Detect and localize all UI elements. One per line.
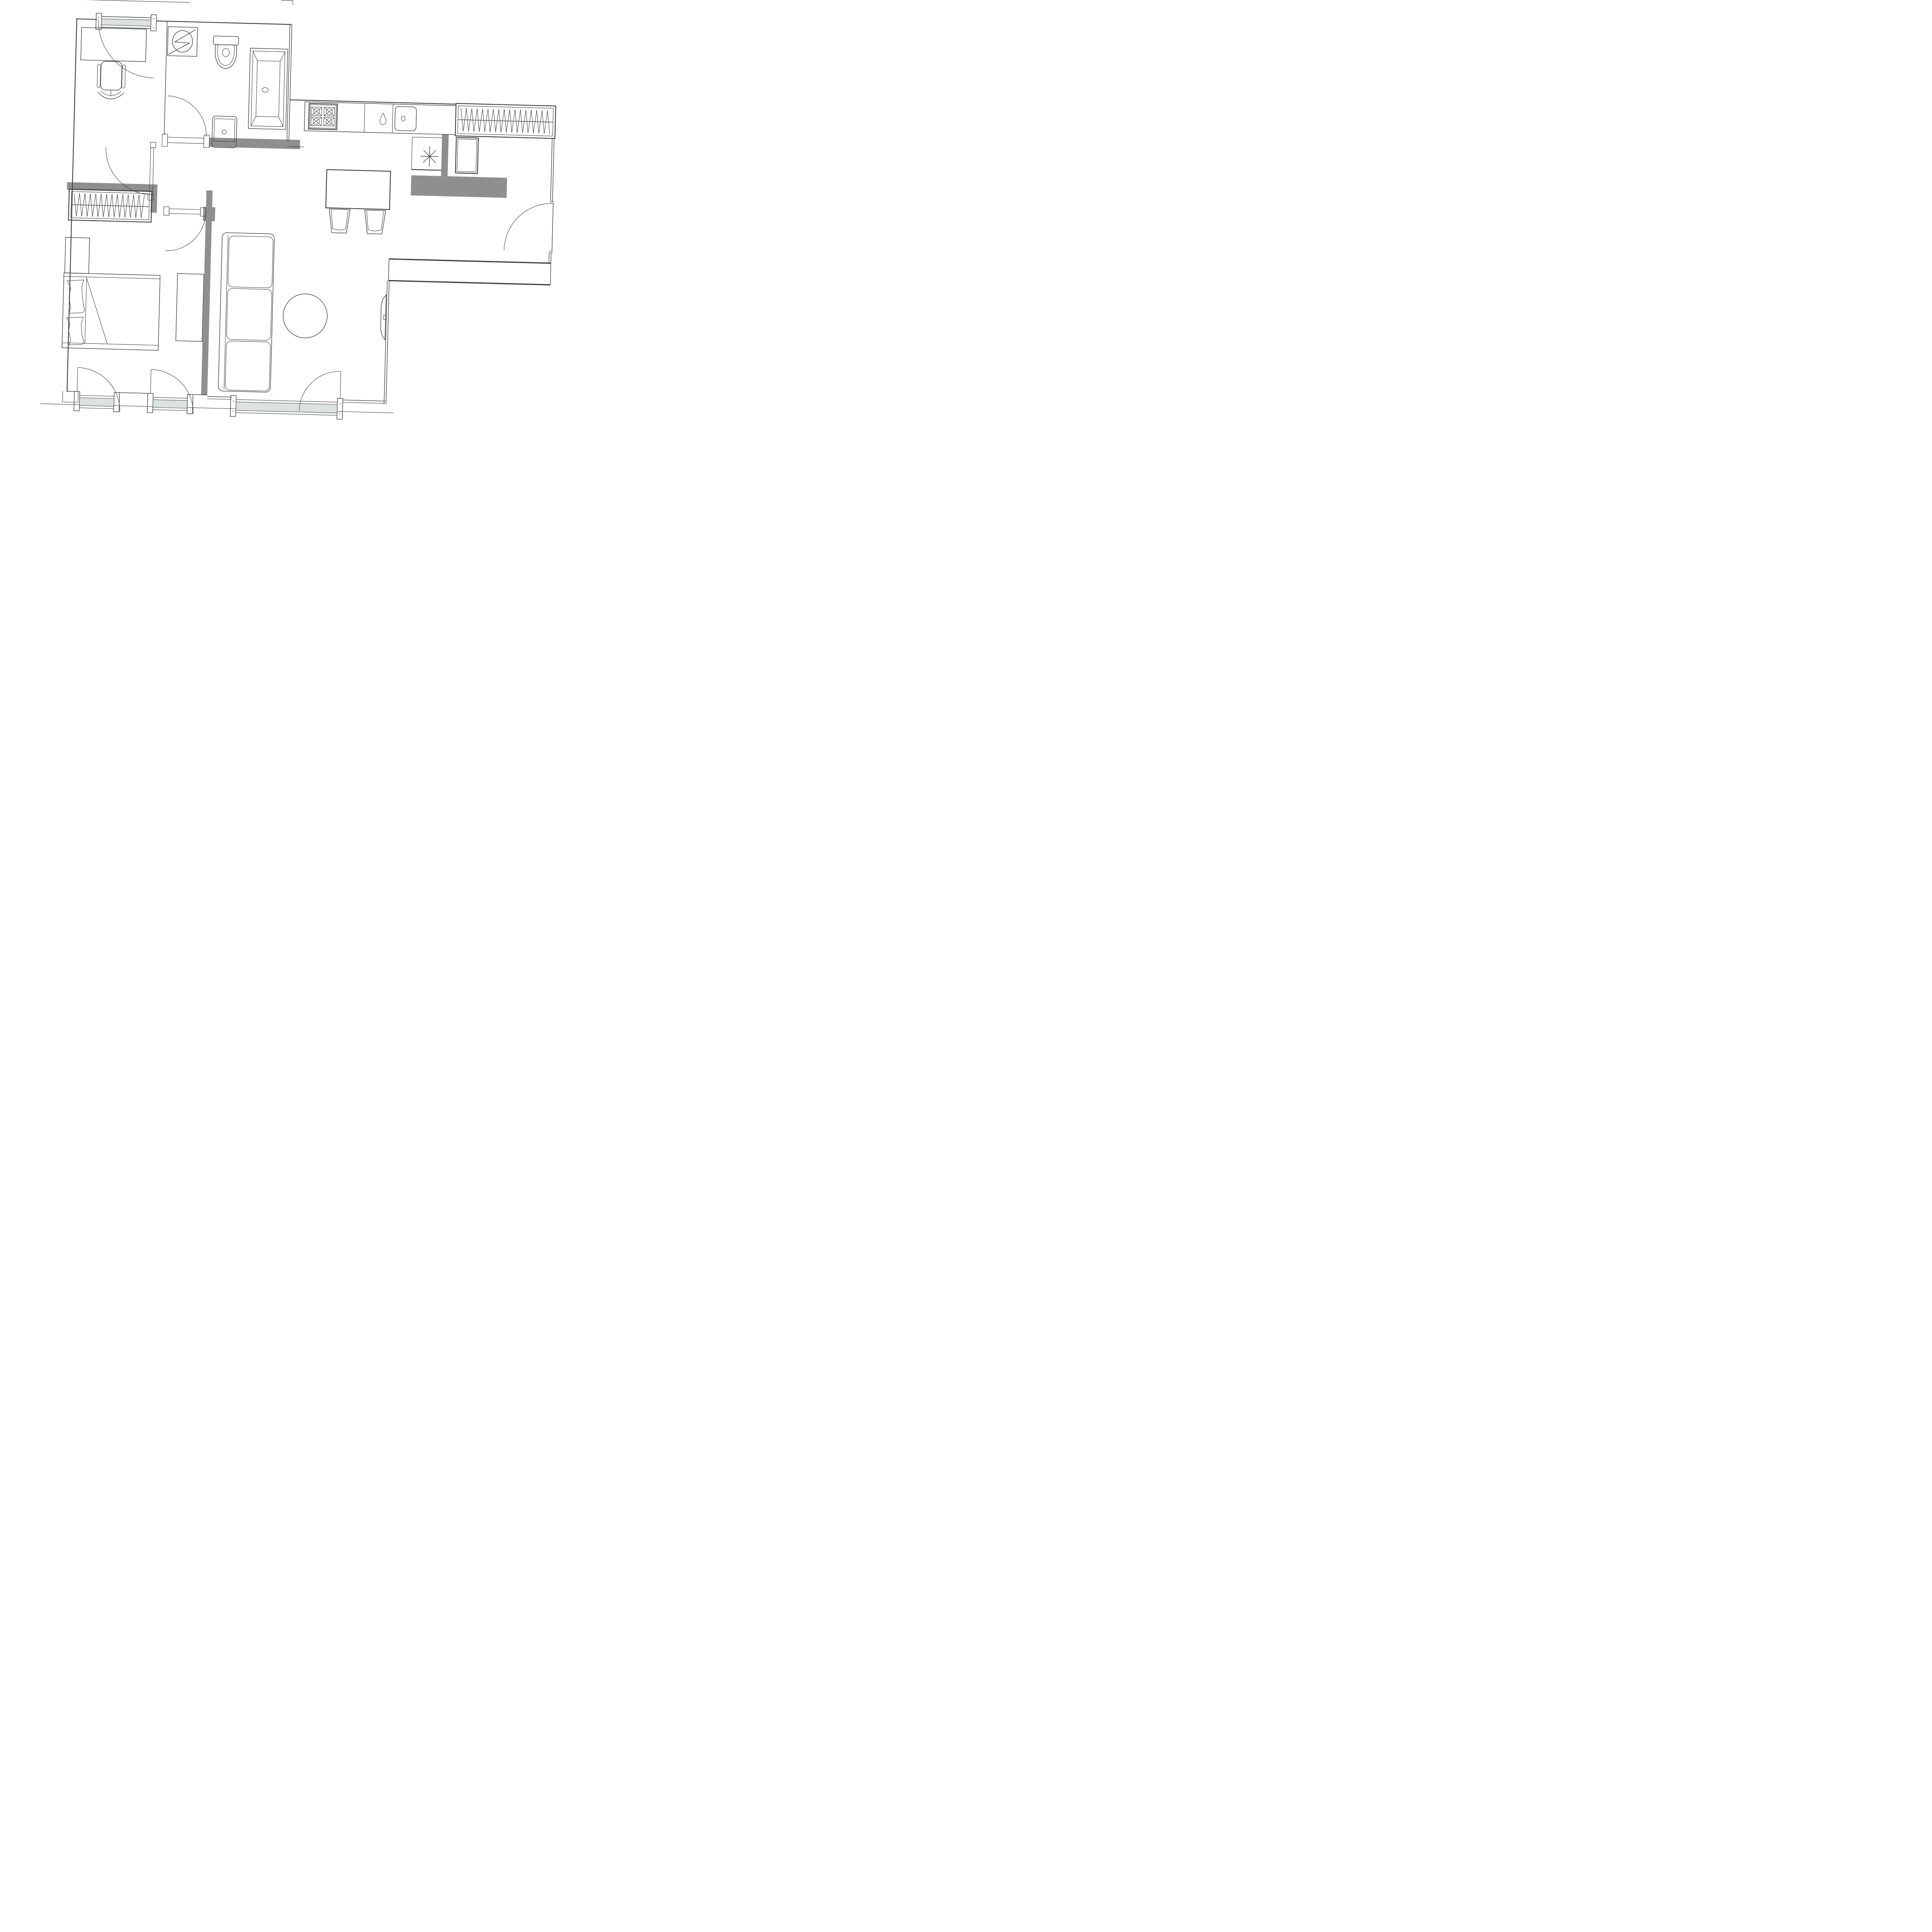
- sofa-cushion: [226, 288, 272, 340]
- closet-top: [412, 137, 442, 138]
- window-glazing: [101, 19, 151, 26]
- wall-east-upper-inner: [551, 138, 552, 202]
- parapet-top: [389, 259, 551, 263]
- bathtub: [248, 48, 287, 129]
- counter-divider: [364, 103, 365, 132]
- window-frame-top: [102, 17, 151, 18]
- room-living: [218, 195, 553, 420]
- stove-inner: [310, 105, 337, 129]
- wall-north-left: [77, 19, 97, 19]
- tall-cabinet-inner: [457, 139, 477, 172]
- wall-bedroom-south-c: [193, 395, 207, 395]
- kitchen-island: [326, 170, 391, 209]
- door-leaf: [169, 209, 201, 214]
- bathtub-bevel: [253, 51, 258, 61]
- stove: [308, 104, 337, 130]
- window-post-right: [114, 393, 119, 412]
- window-glazing: [80, 398, 114, 406]
- sink-drain: [222, 130, 226, 134]
- burner: [324, 117, 335, 126]
- door-jamb: [204, 135, 209, 148]
- desk: [81, 27, 146, 61]
- burner: [324, 107, 335, 116]
- bar-stool: [328, 209, 350, 233]
- window-glazing: [236, 402, 337, 413]
- toilet: [213, 36, 239, 69]
- wall-living-south-a: [207, 396, 231, 397]
- bedroom-window-2: [147, 369, 194, 414]
- window-frame-bottom: [236, 413, 337, 415]
- window-leaf: [340, 371, 341, 398]
- burner: [311, 107, 322, 116]
- window-post-left: [230, 396, 236, 417]
- floor-plan-drawing: [0, 0, 597, 420]
- post-dot: [99, 17, 99, 17]
- room-kitchen: [302, 102, 480, 236]
- wall-bedroom-living-divider: [201, 190, 213, 395]
- office-chair-seat: [100, 61, 122, 90]
- wall-bedroom-south-a: [67, 391, 75, 391]
- wall-living-east-outer: [386, 281, 389, 404]
- room-bathroom: [162, 27, 288, 150]
- boiler-closet: [412, 137, 442, 170]
- post-dot: [233, 411, 233, 412]
- bed-frame: [62, 273, 160, 350]
- exterior-line-top: [81, 0, 190, 2]
- sofa-shell: [218, 233, 275, 392]
- bedroom-window-1: [74, 367, 121, 412]
- living-window: [230, 369, 344, 420]
- parapet-left: [388, 259, 389, 281]
- exterior-notch-top: [281, 0, 293, 5]
- hall-wardrobe: [455, 104, 556, 139]
- washing-machine: [167, 27, 197, 56]
- double-bed: [62, 273, 160, 350]
- kitchen-sink: [395, 106, 417, 131]
- window-frame-bottom: [79, 408, 114, 408]
- wall-living-east-inner: [384, 281, 387, 404]
- bar-stool: [364, 210, 386, 234]
- duvet-fold-line: [85, 278, 109, 344]
- parapet-right: [550, 263, 551, 285]
- tv-body: [380, 295, 386, 340]
- wall-living-south-b: [207, 399, 231, 400]
- office-chair-arm-left: [97, 64, 101, 87]
- wardrobe-hanger-hatch: [460, 108, 550, 134]
- sofa-cushion: [228, 236, 273, 288]
- wall-east-stub-outer: [551, 253, 551, 263]
- bedroom-wardrobe: [68, 189, 152, 222]
- round-table: [282, 293, 328, 338]
- wall-living-south-c: [343, 400, 385, 401]
- wall-kitchen-band: [411, 175, 507, 198]
- door-jamb: [162, 134, 168, 146]
- post-dot: [153, 18, 154, 19]
- faucet-drop-icon: [380, 113, 386, 124]
- door-swing-arc: [165, 211, 206, 252]
- bed-pillow-divider: [85, 277, 87, 344]
- room-office: [77, 13, 159, 200]
- wall-east-stub-inner: [549, 253, 549, 263]
- bathtub-bevel: [251, 116, 256, 126]
- window-frame-top: [236, 400, 337, 402]
- door-jamb: [164, 207, 170, 215]
- tall-cabinet-outer: [456, 138, 478, 173]
- post-dot: [153, 27, 154, 28]
- window-leaf: [77, 367, 78, 391]
- window-post-left: [147, 393, 153, 413]
- toilet-bowl-inner: [217, 44, 235, 66]
- exterior-site-lines: [41, 0, 404, 413]
- window-frame-bottom: [153, 410, 187, 410]
- counter-divider: [392, 104, 393, 133]
- door-leaf: [552, 203, 553, 251]
- closet-left: [412, 137, 412, 170]
- window-post-right: [187, 395, 193, 414]
- wall-bedroom-south-b: [119, 393, 148, 393]
- balcony-parapet: [388, 259, 551, 285]
- kitchen-sink-bowl: [395, 106, 417, 131]
- door-jamb: [150, 142, 156, 148]
- sofa: [218, 233, 275, 392]
- wall-north-right: [156, 21, 292, 24]
- gray-walls: [62, 124, 509, 403]
- window-post-left: [74, 391, 80, 411]
- bed-head-line: [64, 276, 160, 279]
- parapet-bottom: [388, 281, 550, 285]
- bedroom-door: [163, 207, 206, 252]
- tall-cabinet: [456, 138, 478, 173]
- floor-plan-canvas: [0, 0, 597, 420]
- bed-foot-line: [62, 343, 158, 345]
- shell-walls: [63, 18, 559, 415]
- window-frame-top: [80, 395, 114, 396]
- kitchen-sink-drain: [401, 116, 405, 121]
- sofa-backrest: [224, 235, 228, 389]
- wall-kitchen-strip: [441, 134, 449, 176]
- wall-living-south-d: [343, 402, 385, 403]
- post-dot: [233, 401, 234, 401]
- bathroom-door: [162, 96, 210, 148]
- toilet-cistern: [213, 36, 239, 45]
- asterisk-symbol: [420, 146, 439, 167]
- window-post-right: [337, 398, 343, 419]
- closet-bottom: [412, 170, 441, 170]
- room-bedroom: [60, 189, 206, 414]
- window-glazing: [153, 400, 187, 408]
- wall-east-upper-outer: [553, 138, 554, 202]
- wall-office-bath-partition: [164, 21, 167, 135]
- nightstand: [65, 237, 90, 274]
- bathtub-bevel: [280, 52, 285, 61]
- door-swing-arc: [504, 202, 553, 251]
- toilet-flush: [222, 48, 230, 57]
- post-dot: [339, 413, 340, 414]
- door-leaf: [167, 137, 204, 143]
- window-leaf: [150, 369, 151, 393]
- window-post-right: [151, 15, 156, 31]
- wall-south-step: [63, 391, 78, 402]
- sofa-cushion: [225, 341, 270, 391]
- door-swing-arc: [167, 96, 207, 137]
- dresser: [176, 274, 204, 342]
- burner: [311, 117, 322, 126]
- entry-door: [504, 202, 553, 251]
- tv-mount: [384, 315, 386, 320]
- window-frame-top: [153, 397, 187, 398]
- bathtub-drain: [262, 87, 268, 92]
- bathtub-bevel: [279, 117, 284, 127]
- post-dot: [340, 403, 340, 404]
